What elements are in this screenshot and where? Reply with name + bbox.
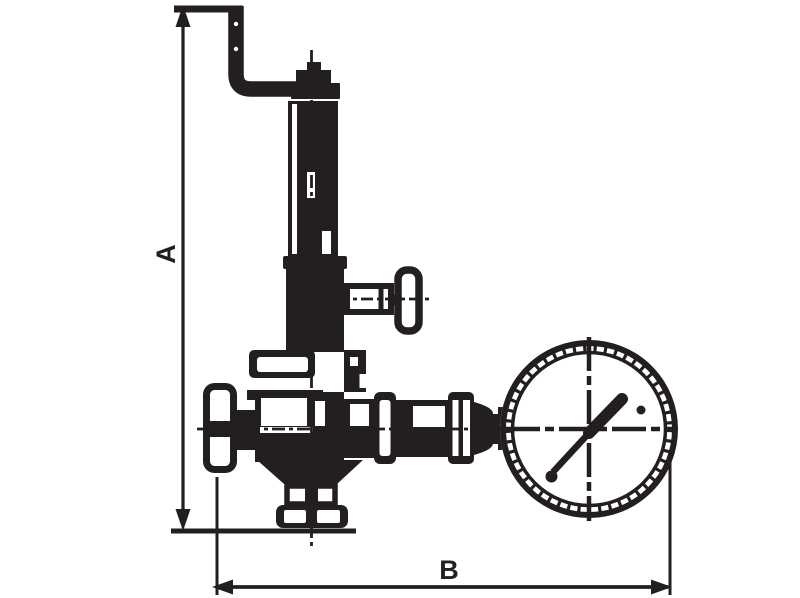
drain-cap-window (284, 510, 306, 523)
arrow-down-icon (176, 509, 191, 531)
drawing-canvas: A B (0, 0, 800, 598)
boss-highlight (360, 374, 368, 388)
body-taper (257, 460, 363, 484)
housing-cap (296, 70, 331, 85)
dial-screw-dot (637, 406, 646, 415)
dimension-a-label: A (151, 244, 181, 264)
body-window (315, 401, 325, 426)
flange-window (257, 357, 308, 372)
boss-highlight (350, 357, 358, 366)
needle-counterweight (546, 471, 558, 483)
drain-cap-window (317, 510, 340, 523)
discharge-pipe (234, 6, 298, 89)
arrow-left-icon (212, 580, 233, 595)
dimension-b-label: B (439, 555, 459, 585)
discharge-pipe-bend (236, 6, 298, 89)
pipe-highlight-dot (234, 22, 238, 26)
pressure-gauge (500, 337, 678, 521)
housing-highlight (292, 104, 297, 254)
outlet-window (350, 404, 369, 426)
body-window (261, 398, 307, 426)
housing-lower (286, 268, 344, 352)
handle-knob (398, 270, 419, 331)
barrel-window (413, 406, 445, 427)
spring-housing (283, 62, 347, 352)
housing-cap-flange (291, 83, 340, 99)
housing-ring (283, 256, 347, 269)
adjustment-handle (347, 270, 419, 331)
housing-highlight (322, 231, 331, 254)
pipe-highlight-dot (234, 47, 238, 51)
bonnet-flange (247, 350, 367, 400)
valve-technical-drawing: A B (0, 0, 800, 598)
